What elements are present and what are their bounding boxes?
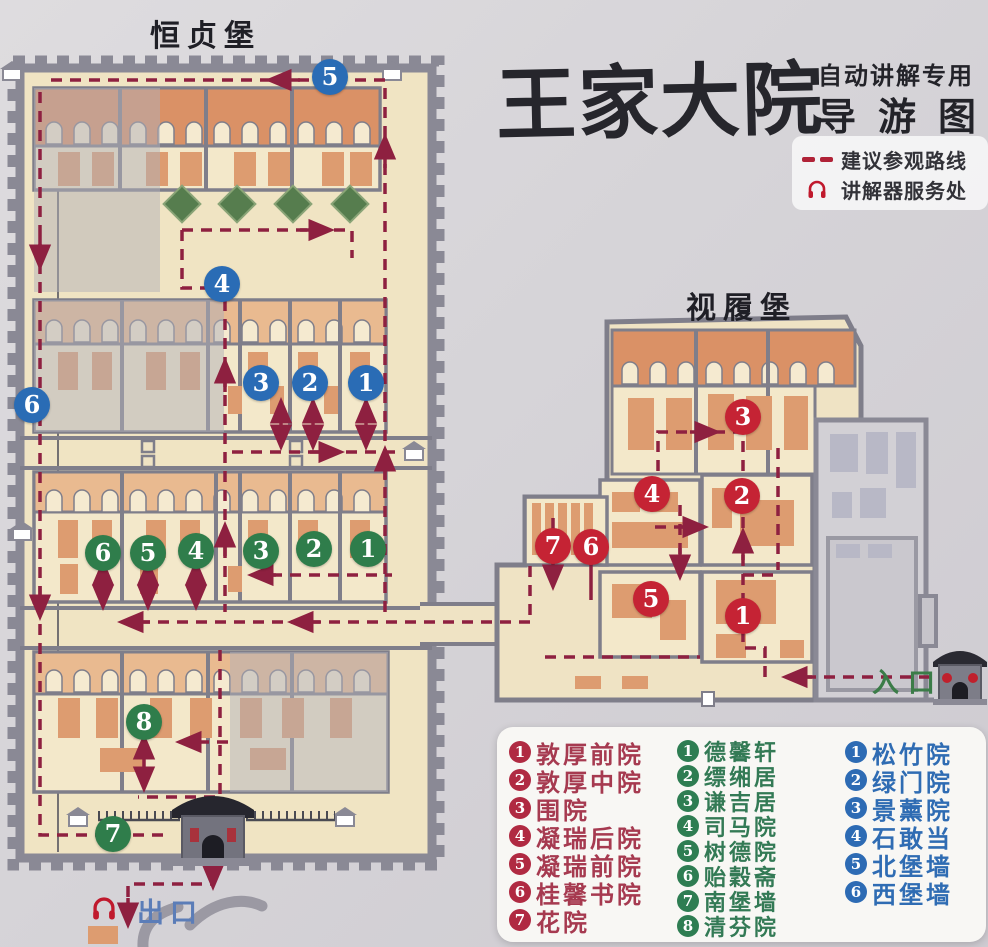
- legend-column-green: 1德馨轩 2缥缃居 3谦吉居 4司马院 5树德院 6贻穀斋 7南堡墙 8清芬院: [677, 738, 779, 938]
- map-marker-red-6: 6: [573, 529, 609, 565]
- legend-item-number: 6: [845, 881, 867, 903]
- legend-item-name: 清芬院: [704, 910, 779, 942]
- map-marker-red-3: 3: [725, 399, 761, 435]
- map-marker-red-4: 4: [634, 476, 670, 512]
- route-key-label: 建议参观路线: [841, 145, 967, 174]
- legend-item-number: 8: [677, 915, 699, 937]
- legend-item-number: 4: [509, 825, 531, 847]
- legend-item-number: 4: [845, 825, 867, 847]
- map-marker-blue-6: 6: [14, 387, 50, 423]
- legend-item-number: 2: [509, 769, 531, 791]
- legend-item-number: 1: [677, 740, 699, 762]
- legend-column-blue: 1松竹院 2绿门院 3景薰院 4石敢当 5北堡墙 6西堡墙: [845, 738, 953, 906]
- map-marker-red-5: 5: [633, 581, 669, 617]
- legend-item-number: 5: [845, 853, 867, 875]
- legend-item-number: 1: [509, 741, 531, 763]
- map-marker-green-3: 3: [243, 533, 279, 569]
- tour-map-page: 王家大院 自动讲解专用 导游图 建议参观路线 讲解器服务处 恒贞堡 视履堡 入口…: [0, 0, 988, 947]
- legend-item-number: 4: [677, 815, 699, 837]
- map-marker-green-2: 2: [296, 531, 332, 567]
- legend-column-red: 1敦厚前院 2敦厚中院 3围院 4凝瑞后院 5凝瑞前院 6桂馨书院 7花院: [509, 738, 644, 934]
- map-key: 建议参观路线 讲解器服务处: [792, 136, 988, 210]
- map-marker-blue-1: 1: [348, 365, 384, 401]
- legend-item-number: 2: [677, 765, 699, 787]
- entrance-label: 入口: [872, 661, 944, 700]
- legend-item: 7花院: [509, 906, 644, 934]
- fort-label-hengzhen: 恒贞堡: [150, 11, 261, 55]
- page-title: 王家大院: [495, 35, 825, 158]
- legend-item-number: 6: [509, 881, 531, 903]
- legend-item-number: 5: [677, 840, 699, 862]
- title-subtitle-bottom: 导游图: [818, 86, 988, 141]
- fort-connector: [420, 604, 502, 644]
- legend-item-number: 3: [677, 790, 699, 812]
- headphones-icon: [800, 178, 834, 200]
- legend-card: 1敦厚前院 2敦厚中院 3围院 4凝瑞后院 5凝瑞前院 6桂馨书院 7花院 1德…: [497, 727, 986, 942]
- annex-faded: [816, 420, 936, 700]
- legend-item-number: 2: [845, 769, 867, 791]
- map-marker-green-4: 4: [178, 533, 214, 569]
- map-marker-blue-2: 2: [292, 365, 328, 401]
- map-marker-green-1: 1: [350, 531, 386, 567]
- route-dash-symbol: [800, 157, 834, 162]
- exit-headphones-icon: [90, 894, 118, 927]
- map-marker-green-6: 6: [85, 535, 121, 571]
- map-marker-red-7: 7: [535, 528, 571, 564]
- legend-item: 8清芬院: [677, 913, 779, 938]
- map-marker-green-8: 8: [126, 704, 162, 740]
- legend-item-number: 3: [845, 797, 867, 819]
- map-marker-blue-4: 4: [204, 266, 240, 302]
- map-marker-blue-3: 3: [243, 365, 279, 401]
- legend-item-number: 6: [677, 865, 699, 887]
- map-marker-red-2: 2: [724, 478, 760, 514]
- legend-item: 6西堡墙: [845, 878, 953, 906]
- legend-item-name: 西堡墙: [872, 875, 953, 910]
- shilv-fort: [497, 317, 936, 706]
- legend-item-number: 5: [509, 853, 531, 875]
- exit-label: 出口: [137, 891, 203, 930]
- hengzhen-fort: [0, 61, 439, 865]
- map-marker-blue-5: 5: [312, 59, 348, 95]
- fort-label-shilv: 视履堡: [686, 283, 797, 327]
- legend-item-number: 1: [845, 741, 867, 763]
- legend-item-number: 7: [509, 909, 531, 931]
- legend-item-number: 7: [677, 890, 699, 912]
- audio-key-label: 讲解器服务处: [841, 175, 967, 204]
- map-marker-green-5: 5: [130, 535, 166, 571]
- map-marker-green-7: 7: [95, 816, 131, 852]
- legend-item-name: 花院: [536, 903, 590, 938]
- legend-item-number: 3: [509, 797, 531, 819]
- map-marker-red-1: 1: [725, 598, 761, 634]
